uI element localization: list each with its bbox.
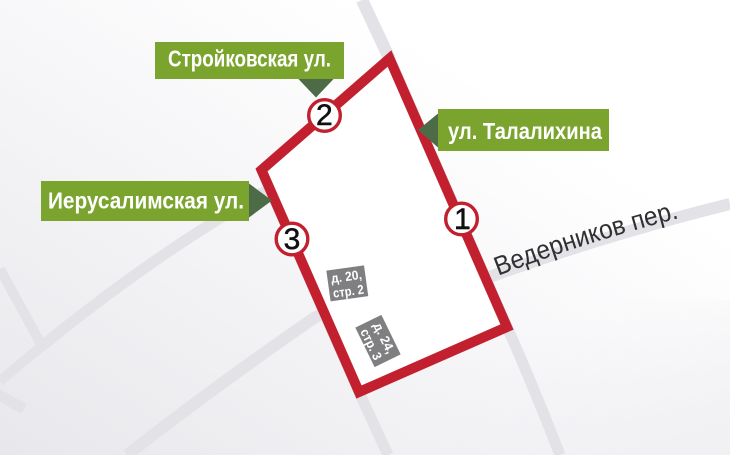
svg-text:1: 1 bbox=[454, 203, 471, 236]
svg-text:Стройковская ул.: Стройковская ул. bbox=[168, 45, 331, 71]
svg-text:ул. Талалихина: ул. Талалихина bbox=[448, 118, 602, 144]
svg-text:3: 3 bbox=[284, 223, 301, 256]
svg-text:Иерусалимская ул.: Иерусалимская ул. bbox=[48, 188, 244, 214]
svg-text:2: 2 bbox=[316, 99, 333, 132]
